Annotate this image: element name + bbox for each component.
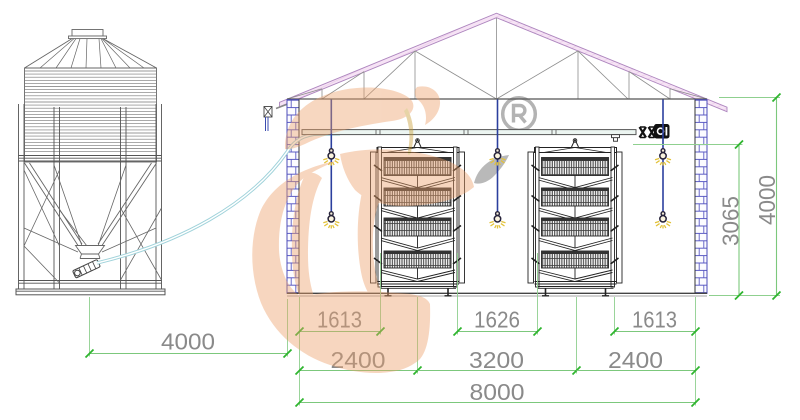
svg-text:4000: 4000 <box>754 175 780 225</box>
svg-text:4000: 4000 <box>161 329 215 355</box>
svg-text:3065: 3065 <box>718 196 744 246</box>
svg-text:2400: 2400 <box>608 347 663 373</box>
svg-text:8000: 8000 <box>470 379 525 405</box>
svg-text:1626: 1626 <box>474 307 520 333</box>
svg-text:1613: 1613 <box>632 307 677 333</box>
svg-text:3200: 3200 <box>469 347 524 373</box>
